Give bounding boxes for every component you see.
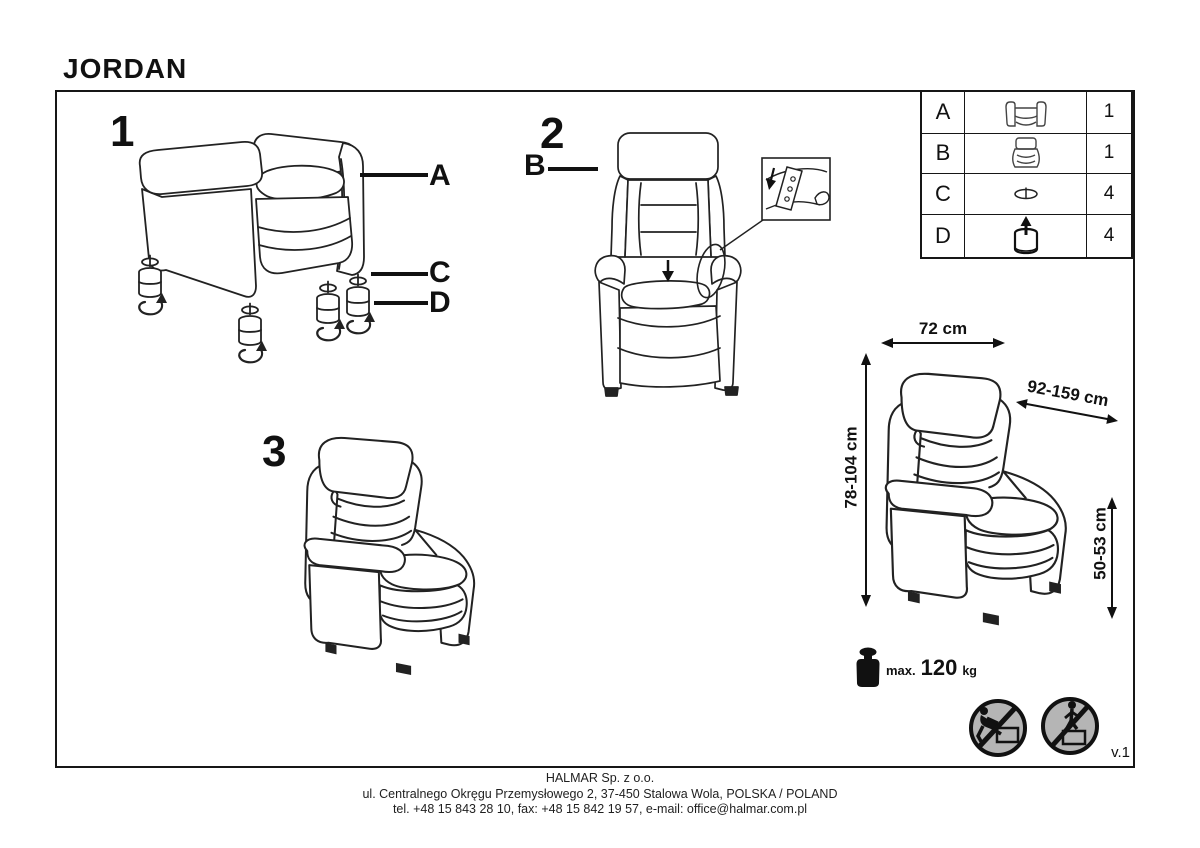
part-qty: 1: [1086, 92, 1131, 133]
max-load-prefix: max.: [886, 663, 916, 678]
max-load-label: max. 120 kg: [886, 655, 977, 681]
callout-label-d: D: [429, 288, 451, 318]
armchair-base-drawing: [115, 105, 475, 375]
parts-table-row-c: C 4: [922, 173, 1131, 214]
leg-icon: [964, 215, 1086, 257]
recliner-front-drawing: [590, 110, 850, 400]
detail-connector-line: [720, 220, 763, 250]
leg-assembly-2: [239, 304, 267, 363]
parts-table-row-b: B 1: [922, 133, 1131, 174]
part-letter: A: [922, 92, 964, 133]
company-contact: tel. +48 15 843 28 10, fax: +48 15 842 1…: [0, 802, 1200, 818]
callout-label-b: B: [524, 151, 546, 181]
part-qty: 4: [1086, 215, 1131, 257]
height-dimension-label: 78-104 cm: [843, 423, 860, 513]
no-standing-on-furniture-sign: [1039, 695, 1101, 757]
callout-label-c: C: [429, 258, 451, 288]
insert-down-arrow-icon: [662, 260, 674, 282]
callout-line-a: [360, 173, 428, 177]
company-name: HALMAR Sp. z o.o.: [0, 771, 1200, 787]
figure-3-number: 3: [262, 430, 286, 474]
part-letter: D: [922, 215, 964, 257]
no-climbing-sign: [967, 697, 1029, 759]
chair-base-icon: [964, 92, 1086, 133]
callout-line-d: [374, 301, 428, 305]
part-qty: 4: [1086, 174, 1131, 214]
width-dimension-arrow: [880, 336, 1006, 350]
assembled-recliner-drawing: [297, 434, 499, 676]
max-load-unit: kg: [962, 664, 977, 678]
parts-table-row-a: A 1: [922, 92, 1131, 133]
company-address: ul. Centralnego Okręgu Przemysłowego 2, …: [0, 787, 1200, 803]
callout-line-c: [371, 272, 428, 276]
instruction-sheet: JORDAN 1: [0, 0, 1200, 848]
parts-table-row-d: D 4: [922, 214, 1131, 257]
part-letter: B: [922, 134, 964, 174]
seat-height-dimension-label: 50-53 cm: [1092, 504, 1109, 584]
leg-assembly-3: [317, 282, 345, 341]
width-dimension-label: 72 cm: [903, 320, 983, 337]
product-title: JORDAN: [63, 53, 187, 85]
max-load-value: 120: [921, 655, 958, 681]
leg-assembly-4: [347, 275, 375, 334]
part-letter: C: [922, 174, 964, 214]
parts-table: A 1 B 1: [920, 90, 1133, 259]
backrest-icon: [964, 134, 1086, 174]
part-qty: 1: [1086, 134, 1131, 174]
footer: HALMAR Sp. z o.o. ul. Centralnego Okręgu…: [0, 771, 1200, 818]
washer-icon: [964, 174, 1086, 214]
callout-label-a: A: [429, 161, 451, 191]
version-label: v.1: [1100, 744, 1130, 761]
weight-icon: [854, 646, 882, 688]
bracket-detail-inset: [762, 158, 830, 220]
